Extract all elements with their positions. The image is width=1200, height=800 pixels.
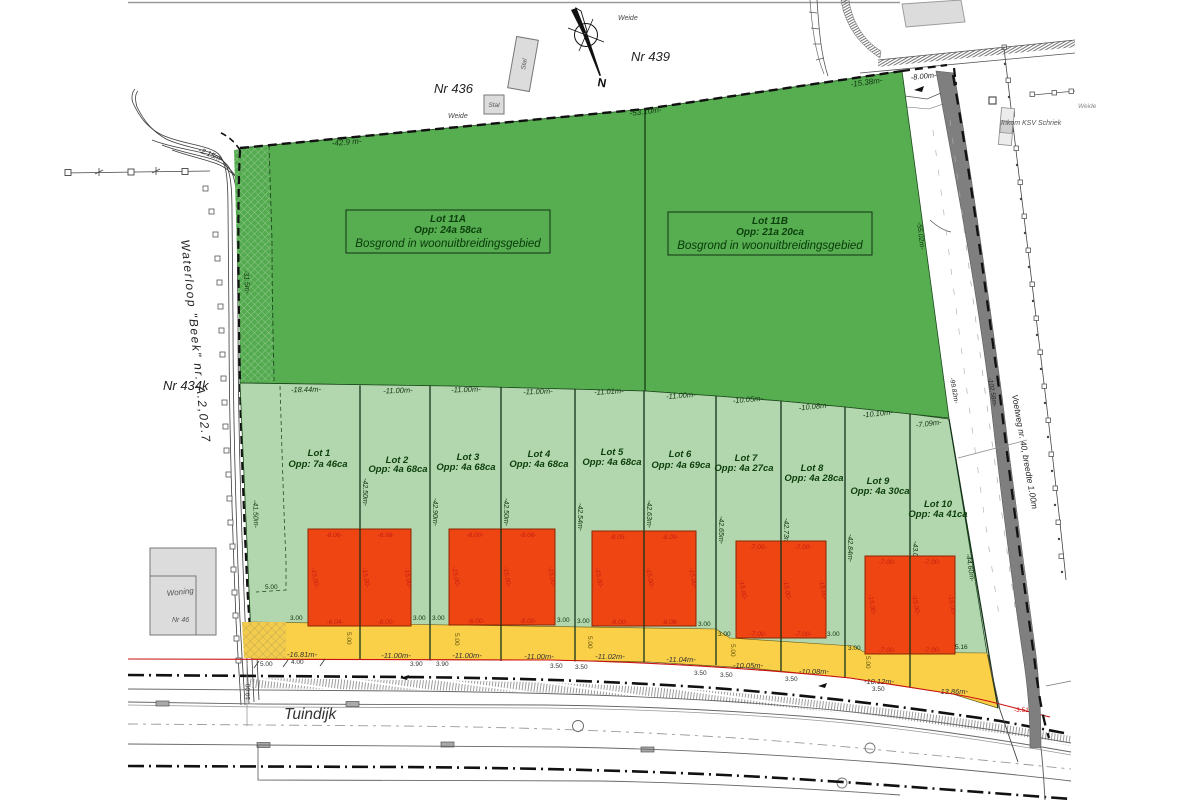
- svg-text:Opp: 4a 30ca: Opp: 4a 30ca: [850, 486, 909, 497]
- svg-text:-8.09-: -8.09-: [662, 534, 680, 541]
- svg-text:-6.04-: -6.04-: [327, 619, 345, 626]
- svg-text:-11.00m-: -11.00m-: [452, 651, 482, 660]
- svg-text:-11.00m-: -11.00m-: [451, 384, 481, 394]
- svg-text:-41.50m-: -41.50m-: [251, 500, 259, 529]
- svg-text:-31.5m-: -31.5m-: [242, 270, 250, 295]
- svg-text:-8.06-: -8.06-: [520, 532, 538, 539]
- svg-text:Nr 434k: Nr 434k: [163, 378, 210, 393]
- svg-text:-7.00-: -7.00-: [879, 559, 897, 566]
- svg-text:-8.00-: -8.00-: [467, 532, 485, 539]
- svg-text:3.50: 3.50: [694, 670, 707, 677]
- svg-text:5.00: 5.00: [260, 661, 273, 668]
- svg-text:3.90: 3.90: [436, 661, 449, 668]
- svg-text:Nr 436: Nr 436: [434, 81, 474, 96]
- svg-text:3.00: 3.00: [413, 615, 426, 622]
- svg-text:Bosgrond in woonuitbreidingsge: Bosgrond in woonuitbreidingsgebied: [677, 240, 863, 252]
- svg-text:3.50: 3.50: [550, 663, 563, 670]
- svg-text:Opp: 7a 46ca: Opp: 7a 46ca: [288, 459, 347, 470]
- svg-text:-7.00-: -7.00-: [879, 647, 897, 654]
- svg-text:3.00: 3.00: [290, 615, 303, 622]
- svg-text:Weide: Weide: [448, 113, 468, 120]
- svg-text:5.00: 5.00: [586, 636, 593, 649]
- svg-text:Opp: 4a 68ca: Opp: 4a 68ca: [436, 462, 495, 473]
- svg-text:5.00: 5.00: [453, 633, 460, 646]
- svg-text:Stal: Stal: [488, 102, 500, 109]
- svg-text:Lot 11A: Lot 11A: [430, 214, 466, 225]
- svg-text:Opp: 24a 58ca: Opp: 24a 58ca: [414, 225, 482, 236]
- svg-text:-8.00-: -8.00-: [520, 618, 538, 625]
- svg-text:Inkom KSV Schriek: Inkom KSV Schriek: [1001, 120, 1062, 127]
- svg-text:-8.00-: -8.00-: [378, 619, 396, 626]
- svg-text:-7.00-: -7.00-: [750, 544, 768, 551]
- svg-text:Lot 1: Lot 1: [308, 448, 331, 459]
- svg-text:-42.54m-: -42.54m-: [576, 503, 583, 532]
- svg-text:Tuindijk: Tuindijk: [284, 706, 338, 723]
- svg-text:Opp: 4a 41ca: Opp: 4a 41ca: [908, 509, 967, 520]
- svg-text:-11.00m-: -11.00m-: [523, 386, 553, 396]
- svg-text:5.00: 5.00: [345, 632, 352, 645]
- svg-text:3.00: 3.00: [718, 631, 731, 638]
- svg-text:5.00: 5.00: [265, 584, 278, 591]
- svg-text:3.50: 3.50: [872, 686, 885, 693]
- svg-text:-18.44m-: -18.44m-: [291, 385, 322, 395]
- svg-text:3.00: 3.00: [432, 615, 445, 622]
- svg-text:3.00: 3.00: [557, 617, 570, 624]
- svg-text:-8.98-: -8.98-: [378, 532, 396, 539]
- svg-text:3.50: 3.50: [575, 664, 588, 671]
- svg-text:-42.63m-: -42.63m-: [645, 500, 652, 529]
- svg-text:3.50: 3.50: [785, 676, 798, 683]
- svg-text:-42.50m-: -42.50m-: [502, 498, 509, 527]
- svg-text:-7.00-: -7.00-: [750, 631, 768, 638]
- svg-text:Opp: 4a 68ca: Opp: 4a 68ca: [582, 457, 641, 468]
- svg-text:Lot 11B: Lot 11B: [752, 216, 788, 227]
- svg-text:3.00: 3.00: [848, 645, 861, 652]
- svg-text:-8.06-: -8.06-: [326, 532, 344, 539]
- svg-text:5.00: 5.00: [729, 644, 736, 657]
- svg-text:10.00: 10.00: [245, 683, 252, 700]
- svg-text:Nr 439: Nr 439: [631, 49, 670, 64]
- svg-text:-11.00m-: -11.00m-: [381, 651, 411, 660]
- svg-text:-8.08-: -8.08-: [662, 619, 680, 626]
- svg-text:Opp: 4a 28ca: Opp: 4a 28ca: [784, 473, 843, 484]
- svg-text:3.90: 3.90: [410, 661, 423, 668]
- svg-text:Opp: 4a 69ca: Opp: 4a 69ca: [651, 460, 710, 471]
- svg-text:3.00: 3.00: [698, 621, 711, 628]
- svg-text:5.16: 5.16: [955, 644, 968, 651]
- svg-text:-7.00-: -7.00-: [795, 544, 813, 551]
- svg-text:Opp: 21a 20ca: Opp: 21a 20ca: [736, 227, 804, 238]
- svg-text:-42.90m-: -42.90m-: [431, 498, 438, 527]
- svg-text:5.00: 5.00: [864, 656, 871, 669]
- svg-text:3.00: 3.00: [577, 618, 590, 625]
- svg-text:Opp: 4a 68ca: Opp: 4a 68ca: [368, 464, 427, 475]
- svg-text:-16.81m-: -16.81m-: [287, 650, 318, 659]
- svg-text:4.00: 4.00: [291, 659, 304, 666]
- svg-text:-11.00m-: -11.00m-: [383, 385, 413, 395]
- svg-text:-7.00-: -7.00-: [795, 631, 813, 638]
- svg-text:-6.00-: -6.00-: [611, 619, 629, 626]
- svg-text:-11.01m-: -11.01m-: [594, 386, 624, 397]
- svg-text:Bosgrond in woonuitbreidingsge: Bosgrond in woonuitbreidingsgebied: [355, 238, 541, 250]
- svg-text:Nr 46: Nr 46: [172, 617, 189, 624]
- svg-text:Weide: Weide: [618, 15, 638, 22]
- svg-text:Weide: Weide: [1078, 103, 1097, 110]
- svg-text:-42.65m-: -42.65m-: [717, 516, 724, 545]
- svg-text:Opp: 4a 68ca: Opp: 4a 68ca: [509, 459, 568, 470]
- svg-text:-13.86m-: -13.86m-: [938, 687, 969, 696]
- svg-text:-42.84m-: -42.84m-: [846, 534, 853, 563]
- svg-text:-11.02m-: -11.02m-: [595, 652, 625, 661]
- svg-text:3.00: 3.00: [827, 631, 840, 638]
- svg-text:Lot 6: Lot 6: [669, 449, 692, 460]
- svg-text:-7.00-: -7.00-: [924, 559, 942, 566]
- svg-text:-6.00-: -6.00-: [468, 618, 486, 625]
- svg-text:3.50: 3.50: [720, 672, 733, 679]
- svg-text:-8.05-: -8.05-: [610, 534, 628, 541]
- svg-text:-7.00-: -7.00-: [924, 647, 942, 654]
- svg-text:-11.04m-: -11.04m-: [666, 655, 696, 664]
- svg-text:Opp: 4a 27ca: Opp: 4a 27ca: [714, 463, 773, 474]
- svg-text:-42.50m-: -42.50m-: [361, 478, 368, 507]
